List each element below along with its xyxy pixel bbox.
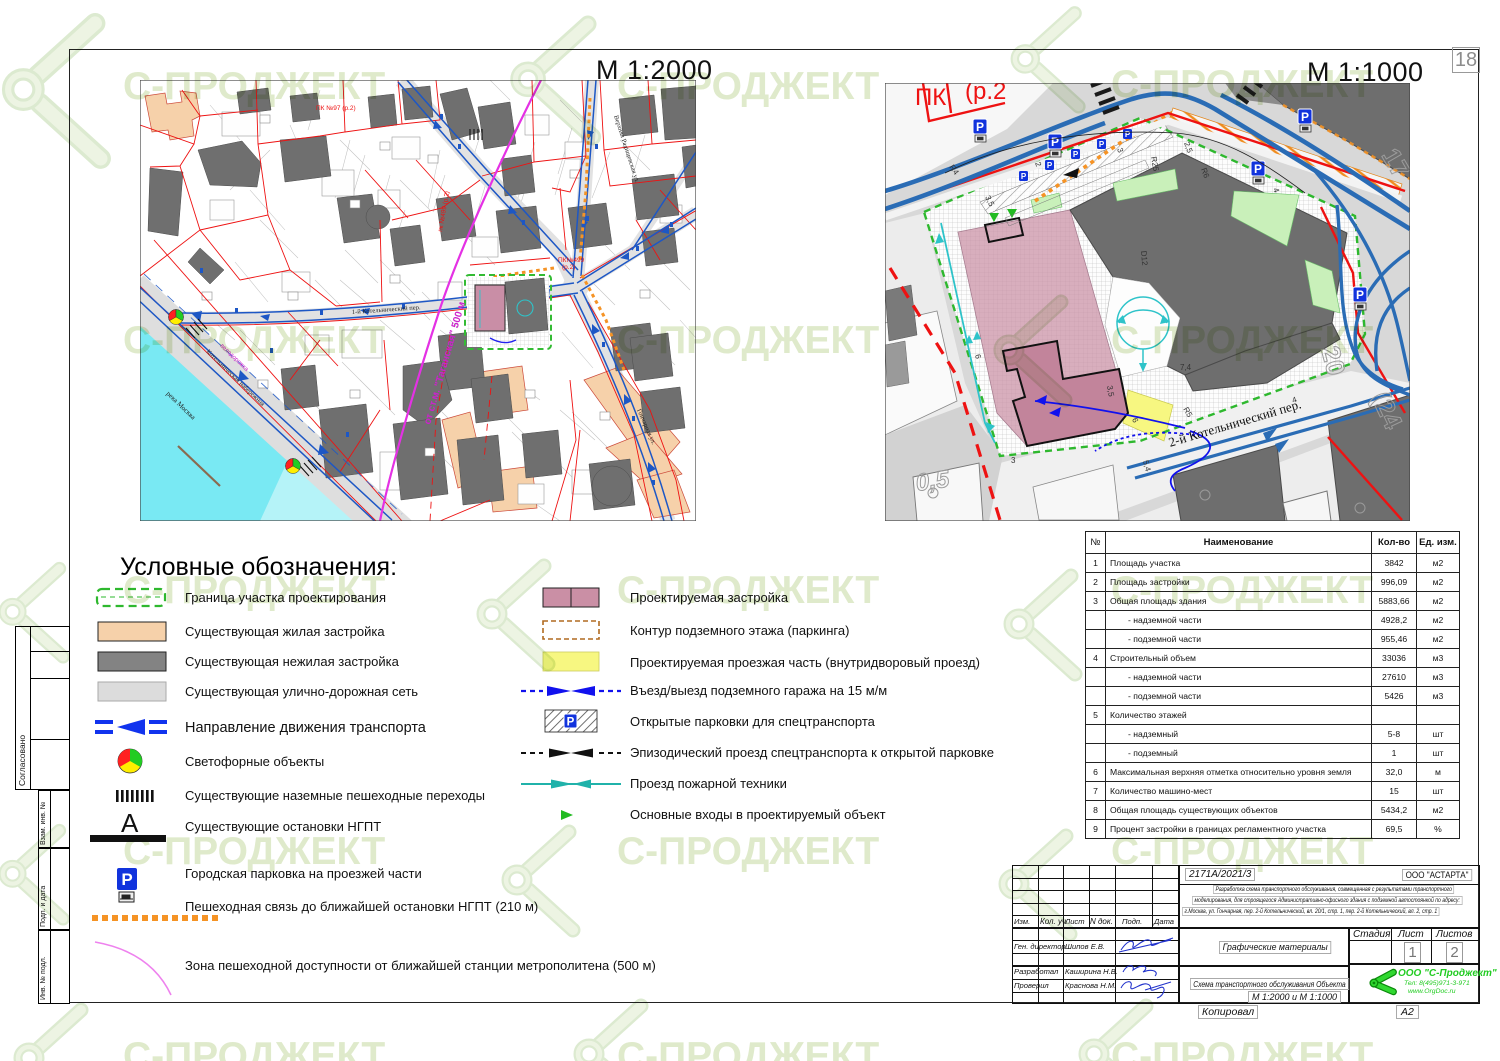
svg-text:ПК№499: ПК№499 bbox=[558, 257, 585, 264]
svg-text:Пешеходная связь до ближайшей: Пешеходная связь до ближайшей остановки … bbox=[185, 899, 538, 914]
svg-text:P: P bbox=[1051, 135, 1059, 149]
svg-text:Существующая нежилая застройка: Существующая нежилая застройка bbox=[185, 654, 400, 669]
svg-text:7,4: 7,4 bbox=[1180, 363, 1192, 372]
svg-text:Зона пешеходной доступности от: Зона пешеходной доступности от ближайшей… bbox=[185, 958, 656, 973]
svg-text:Открытые парковки для спецтран: Открытые парковки для спецтранспорта bbox=[630, 714, 876, 729]
svg-text:P: P bbox=[1356, 288, 1364, 302]
svg-text:D12: D12 bbox=[1139, 250, 1149, 266]
svg-text:P: P bbox=[1073, 150, 1079, 159]
svg-text:Существующая улично-дорожная с: Существующая улично-дорожная сеть bbox=[185, 684, 418, 699]
svg-text:Городская парковка на проезжей: Городская парковка на проезжей части bbox=[185, 866, 422, 881]
svg-text:С-ПРОДЖЕКТ: С-ПРОДЖЕКТ bbox=[123, 1035, 385, 1061]
svg-text:Проектируемая проезжая часть (: Проектируемая проезжая часть (внутридвор… bbox=[630, 655, 980, 670]
svg-text:P: P bbox=[1047, 161, 1053, 170]
svg-text:С-ПРОДЖЕКТ: С-ПРОДЖЕКТ bbox=[617, 1035, 879, 1061]
svg-text:Эпизодический проезд спецтранс: Эпизодический проезд спецтранспорта к от… bbox=[630, 745, 994, 760]
svg-text:Проезд пожарной техники: Проезд пожарной техники bbox=[630, 776, 787, 791]
svg-text:Въезд/выезд подземного гаража: Въезд/выезд подземного гаража на 15 м/м bbox=[630, 683, 887, 698]
svg-text:(р.2): (р.2) bbox=[562, 264, 575, 271]
svg-text:3: 3 bbox=[1011, 456, 1016, 465]
svg-text:Направление движения транспорт: Направление движения транспорта bbox=[185, 720, 427, 736]
svg-text:P: P bbox=[1254, 162, 1262, 176]
svg-text:Существующие остановки НГПТ: Существующие остановки НГПТ bbox=[185, 819, 381, 834]
svg-text:(р.2: (р.2 bbox=[965, 83, 1006, 105]
svg-text:P: P bbox=[976, 120, 984, 134]
svg-text:Существующие наземные пешеходн: Существующие наземные пешеходные переход… bbox=[185, 788, 485, 803]
svg-text:Граница участка проектирования: Граница участка проектирования bbox=[185, 590, 386, 605]
svg-text:ПК №97 (р.2): ПК №97 (р.2) bbox=[316, 105, 356, 112]
svg-text:P: P bbox=[1301, 110, 1309, 124]
svg-text:P: P bbox=[567, 717, 575, 729]
svg-text:Существующая жилая застройка: Существующая жилая застройка bbox=[185, 624, 385, 639]
svg-text:P: P bbox=[1125, 130, 1131, 139]
svg-text:P: P bbox=[121, 870, 132, 889]
svg-text:Основные входы в проектируемый: Основные входы в проектируемый объект bbox=[630, 807, 886, 822]
svg-text:ПК: ПК bbox=[915, 84, 946, 111]
svg-text:С-ПРОДЖЕКТ: С-ПРОДЖЕКТ bbox=[1111, 1035, 1373, 1061]
svg-text:P: P bbox=[1099, 140, 1105, 149]
svg-text:Проектируемая застройка: Проектируемая застройка bbox=[630, 590, 789, 605]
svg-text:Контур подземного этажа (парки: Контур подземного этажа (паркинга) bbox=[630, 623, 849, 638]
svg-text:Светофорные объекты: Светофорные объекты bbox=[185, 754, 324, 769]
svg-text:0,5: 0,5 bbox=[914, 465, 951, 496]
svg-text:А: А bbox=[121, 808, 139, 838]
svg-text:P: P bbox=[1021, 172, 1027, 181]
